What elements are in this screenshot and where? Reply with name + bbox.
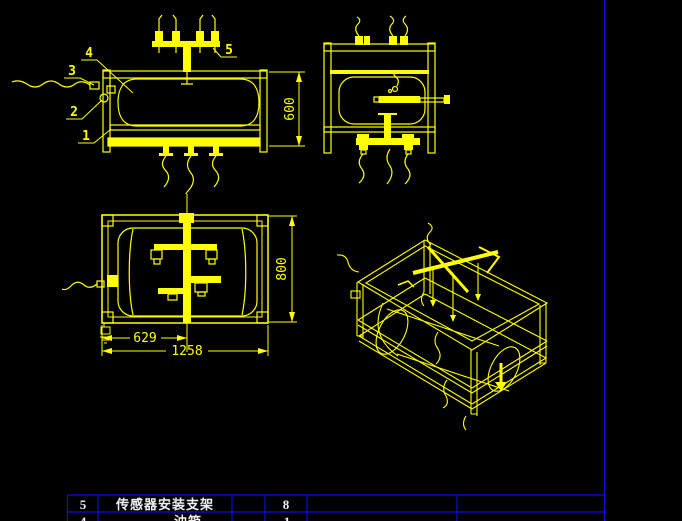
- balloon-2: 2: [70, 105, 78, 120]
- front-balloon-leaders: [64, 48, 237, 143]
- bom-row-1-qty: 8: [283, 497, 290, 512]
- bom-row-1: 5 传感器安装支架 8: [80, 497, 290, 512]
- iso-sensor-gantry: [398, 223, 499, 322]
- front-left-fittings: [12, 81, 115, 102]
- bom-table-text: 5 传感器安装支架 8 4 油箱 1: [80, 497, 291, 521]
- front-cable-left: [12, 81, 90, 87]
- balloon-3: 3: [68, 64, 76, 79]
- plan-left-cable: [62, 275, 118, 290]
- dim-1258-label: 1258: [171, 344, 202, 359]
- front-top-sensor-assembly: [152, 15, 220, 84]
- iso-post-fitting: [351, 291, 360, 298]
- side-probe: [374, 95, 450, 104]
- side-view: [324, 16, 450, 184]
- side-top-sensors: [355, 16, 408, 45]
- front-bottom-rail: [108, 138, 260, 146]
- cad-canvas: 600 4 5 3 2 1: [0, 0, 682, 521]
- balloon-5: 5: [225, 43, 233, 58]
- bom-row-2-qty: 1: [284, 514, 291, 521]
- bom-row-1-no: 5: [80, 497, 87, 512]
- side-top-rail: [324, 44, 435, 51]
- side-left-post: [324, 43, 331, 153]
- side-inner-rail: [330, 70, 429, 74]
- front-right-post: [260, 70, 267, 152]
- balloon-4: 4: [85, 46, 93, 61]
- balloon-1: 1: [82, 129, 90, 144]
- bom-row-2-name: 油箱: [174, 514, 202, 521]
- front-top-rail: [103, 71, 267, 78]
- bom-row-2: 4 油箱 1: [80, 514, 291, 521]
- dim-600-label: 600: [283, 97, 298, 120]
- front-view: 600 4 5 3 2 1: [12, 15, 305, 214]
- dim-629-label: 629: [133, 331, 156, 346]
- iso-posts: [357, 240, 546, 416]
- front-bottom-sensors: [159, 146, 223, 214]
- plan-view: 629 1258 800: [62, 213, 297, 359]
- dim-800-label: 800: [275, 257, 290, 280]
- side-bottom-rail: [324, 127, 435, 132]
- bom-row-1-name: 传感器安装支架: [115, 497, 214, 512]
- isometric-view: [337, 223, 547, 430]
- cad-drawing: 600 4 5 3 2 1: [0, 0, 682, 521]
- front-tank-outline: [118, 79, 259, 126]
- bom-row-2-no: 4: [80, 514, 87, 521]
